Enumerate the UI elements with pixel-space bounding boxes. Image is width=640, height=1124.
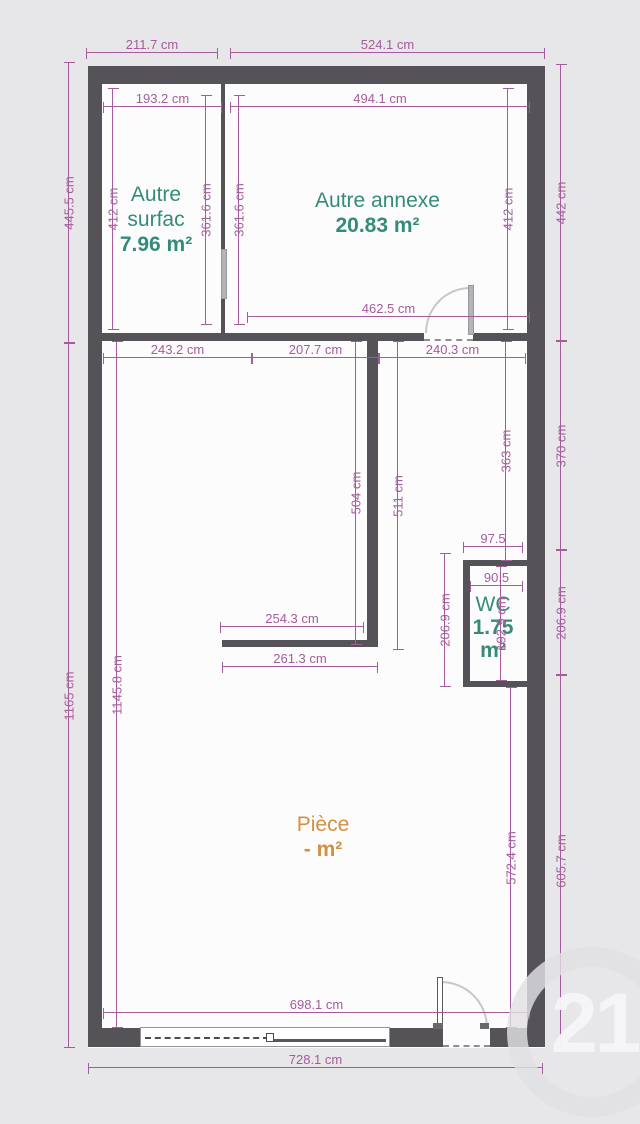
dimension-line: 1145.8 cm (116, 341, 117, 1028)
dimension-line: 698.1 cm (103, 1012, 530, 1013)
dimension-line: 192.9 cm (500, 566, 501, 681)
dimension-label: 504 cm (350, 472, 363, 515)
dimension-label: 605.7 cm (555, 834, 568, 887)
dimension-label: 207.7 cm (289, 343, 342, 356)
dimension-line: 361.6 cm (205, 95, 206, 325)
dimension-label: 494.1 cm (353, 92, 406, 105)
century21-logo-digits: 21 (551, 975, 638, 1072)
dimension-label: 361.6 cm (200, 183, 213, 236)
dimension-label: 442 cm (555, 181, 568, 224)
dimension-label: 206.9 cm (439, 593, 452, 646)
dimension-line: 462.5 cm (247, 316, 530, 317)
dimension-label: 572.4 cm (505, 831, 518, 884)
dimension-label: 240.3 cm (426, 343, 479, 356)
dimension-line: 90.5 (470, 585, 523, 586)
dimension-label: 243.2 cm (151, 343, 204, 356)
dimension-label: 363 cm (500, 430, 513, 473)
dimension-line: 728.1 cm (88, 1067, 543, 1068)
dimension-label: 511 cm (392, 475, 405, 517)
dimension-label: 445.5 cm (63, 176, 76, 229)
dimension-label: 211.7 cm (126, 38, 179, 51)
dimension-line: 370 cm (560, 341, 561, 550)
dimension-line: 243.2 cm (103, 357, 252, 358)
dimension-line: 363 cm (505, 341, 506, 561)
dimension-label: 370 cm (555, 424, 568, 467)
dimension-label: 698.1 cm (290, 998, 343, 1011)
dimension-line: 504 cm (355, 341, 356, 645)
dimension-line: 261.3 cm (222, 666, 378, 667)
dimension-line: 494.1 cm (230, 106, 530, 107)
dimension-label: 524.1 cm (361, 38, 414, 51)
dimension-line: 361.6 cm (238, 95, 239, 325)
dimension-line: 1165 cm (68, 343, 69, 1048)
dimension-line: 524.1 cm (230, 52, 545, 53)
dimension-label: 462.5 cm (362, 302, 415, 315)
dimension-label: 206.9 cm (555, 586, 568, 639)
dimension-line: 412 cm (507, 88, 508, 330)
dimension-label: 193.2 cm (136, 92, 189, 105)
dimension-label: 97.5 (480, 532, 505, 545)
dimension-label: 412 cm (107, 188, 120, 231)
dimensions-layer: 211.7 cm524.1 cm193.2 cm494.1 cm462.5 cm… (0, 0, 640, 1124)
dimension-label: 361.6 cm (233, 183, 246, 236)
dimension-line: 207.7 cm (252, 357, 379, 358)
dimension-label: 90.5 (484, 571, 509, 584)
dimension-line: 511 cm (397, 341, 398, 650)
dimension-label: 728.1 cm (289, 1053, 342, 1066)
dimension-line: 97.5 (463, 546, 523, 547)
dimension-line: 206.9 cm (560, 550, 561, 675)
dimension-line: 206.9 cm (444, 553, 445, 687)
dimension-label: 1165 cm (63, 671, 76, 720)
dimension-label: 192.9 cm (495, 597, 508, 650)
dimension-label: 261.3 cm (273, 652, 326, 665)
dimension-line: 211.7 cm (86, 52, 218, 53)
dimension-line: 254.3 cm (220, 626, 364, 627)
dimension-line: 412 cm (112, 88, 113, 330)
dimension-line: 445.5 cm (68, 62, 69, 343)
dimension-label: 412 cm (502, 188, 515, 231)
dimension-line: 442 cm (560, 64, 561, 341)
dimension-label: 254.3 cm (265, 612, 318, 625)
dimension-label: 1145.8 cm (111, 655, 124, 715)
dimension-line: 572.4 cm (510, 687, 511, 1028)
floor-plan: Autre surfac 7.96 m² Autre annexe 20.83 … (0, 0, 640, 1124)
dimension-line: 240.3 cm (379, 357, 526, 358)
